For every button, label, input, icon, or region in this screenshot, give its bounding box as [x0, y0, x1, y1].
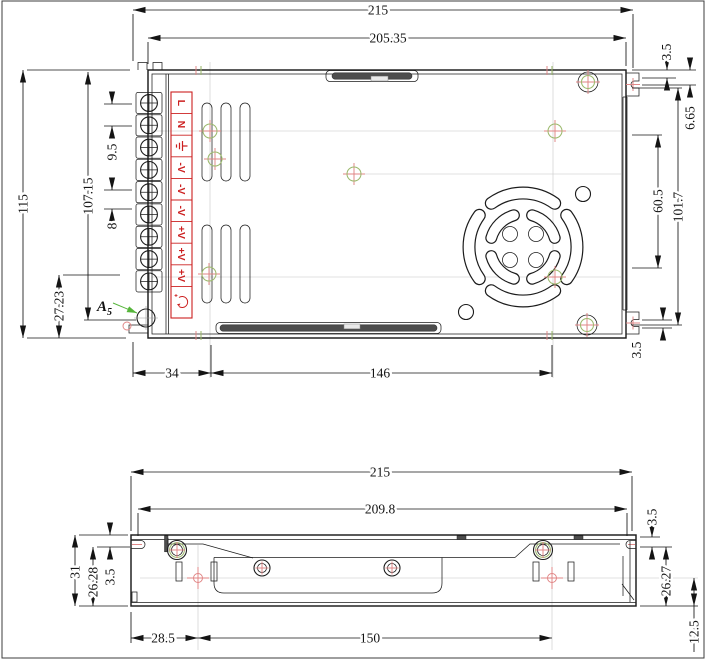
svg-text:3.5: 3.5 [659, 43, 674, 60]
terminal-label-pos-v: +V [175, 226, 187, 239]
top-edge-tab [574, 536, 583, 540]
panel-screw [254, 560, 270, 576]
detail-marker-number: 5 [107, 307, 112, 318]
terminal-label-neg-v: -V [175, 162, 187, 173]
terminal-label-pos-v: +V [175, 247, 187, 260]
svg-text:209.8: 209.8 [365, 501, 396, 516]
panel-screw [384, 560, 400, 576]
psu-dimension-drawing: L N -V -V -V +V +V +V [0, 0, 706, 660]
svg-text:205.35: 205.35 [369, 30, 406, 45]
svg-text:31: 31 [68, 565, 83, 579]
svg-text:8: 8 [105, 222, 120, 229]
terminal-label-L: L [175, 100, 187, 107]
svg-text:215: 215 [368, 2, 389, 17]
terminal-label-pos-v: +V [175, 269, 187, 282]
terminal-label-neg-v: -V [175, 184, 187, 195]
detail-marker-letter: A [96, 299, 107, 315]
svg-text:27.23: 27.23 [52, 291, 67, 322]
svg-text:6.65: 6.65 [683, 106, 698, 130]
svg-text:3.5: 3.5 [645, 508, 660, 525]
terminal-label-N: N [175, 121, 187, 129]
chassis-screw [168, 541, 187, 560]
svg-text:107.15: 107.15 [81, 177, 96, 214]
svg-text:34: 34 [165, 365, 179, 380]
svg-text:26.27: 26.27 [659, 566, 674, 597]
svg-text:215: 215 [370, 464, 391, 479]
svg-text:101.7: 101.7 [671, 192, 686, 223]
terminal-label-neg-v: -V [175, 206, 187, 217]
chassis-screw [534, 541, 553, 560]
svg-text:150: 150 [360, 630, 381, 645]
svg-text:9.5: 9.5 [105, 143, 120, 160]
svg-text:146: 146 [370, 365, 391, 380]
svg-text:3.5: 3.5 [103, 568, 118, 585]
svg-text:3.5: 3.5 [629, 341, 644, 358]
svg-text:60.5: 60.5 [651, 189, 666, 213]
svg-text:26.28: 26.28 [86, 567, 101, 598]
svg-text:28.5: 28.5 [151, 630, 175, 645]
svg-text:115: 115 [16, 194, 31, 214]
svg-text:12.5: 12.5 [687, 620, 702, 644]
top-edge-tab [457, 536, 466, 540]
